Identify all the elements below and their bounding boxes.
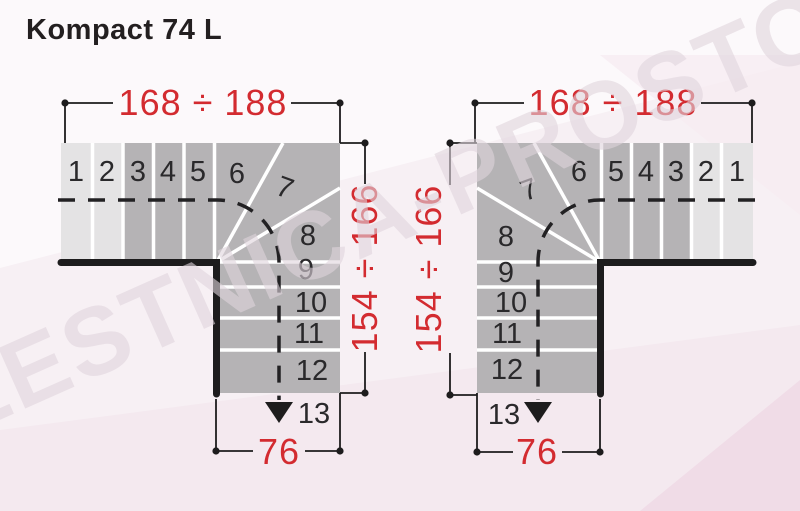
step-number: 4 bbox=[638, 156, 654, 188]
step-number: 8 bbox=[300, 220, 316, 252]
dimension-dot bbox=[361, 139, 368, 146]
wall-line bbox=[61, 263, 217, 395]
dimension-dot bbox=[446, 139, 453, 146]
step-number: 12 bbox=[491, 354, 523, 386]
step-number: 4 bbox=[160, 156, 176, 188]
dimension-label: 154 ÷ 166 bbox=[408, 185, 449, 354]
dimension-label: 76 bbox=[258, 431, 300, 472]
stair-plan-right: 1 2 3 4 5 6 7 8 9 10 11 12 13 168 ÷ 188 bbox=[408, 82, 756, 472]
step-number: 12 bbox=[296, 355, 328, 387]
dimension-side-height: 154 ÷ 166 bbox=[408, 139, 477, 398]
dimension-dot bbox=[212, 447, 219, 454]
step-number: 9 bbox=[298, 254, 314, 286]
dimension-dot bbox=[336, 99, 343, 106]
step-number: 10 bbox=[295, 287, 327, 319]
step-number: 11 bbox=[294, 318, 324, 350]
dimension-dot bbox=[336, 447, 343, 454]
dimension-top-width: 168 ÷ 188 bbox=[471, 82, 755, 143]
dimension-dot bbox=[446, 391, 453, 398]
dimension-label: 76 bbox=[516, 431, 558, 472]
step-number: 8 bbox=[498, 221, 514, 253]
wall-line bbox=[601, 263, 754, 395]
step-number: 10 bbox=[495, 287, 527, 319]
exit-arrow-icon bbox=[524, 402, 552, 423]
dimension-label: 168 ÷ 188 bbox=[119, 82, 288, 123]
stair-plan-canvas: Kompact 74 L 1 2 3 4 5 6 7 bbox=[0, 0, 800, 511]
step-number: 13 bbox=[298, 398, 330, 430]
step-number: 3 bbox=[668, 156, 684, 188]
step-number: 6 bbox=[571, 156, 587, 188]
step-number: 1 bbox=[68, 156, 84, 188]
dimension-label: 154 ÷ 166 bbox=[344, 184, 385, 353]
step-number: 2 bbox=[99, 156, 115, 188]
step-number: 3 bbox=[130, 156, 146, 188]
dimension-top-width: 168 ÷ 188 bbox=[61, 82, 343, 143]
dimension-dot bbox=[361, 389, 368, 396]
dimension-dot bbox=[471, 99, 478, 106]
step-number: 13 bbox=[488, 399, 520, 431]
dimension-dot bbox=[61, 99, 68, 106]
dimension-dot bbox=[748, 99, 755, 106]
step-number: 6 bbox=[229, 158, 245, 190]
step-number: 5 bbox=[608, 156, 624, 188]
step-number: 11 bbox=[492, 318, 522, 350]
page-title: Kompact 74 L bbox=[26, 14, 222, 47]
dimension-dot bbox=[473, 448, 480, 455]
step-number: 1 bbox=[729, 156, 745, 188]
stair-diagrams: 1 2 3 4 5 6 7 8 9 10 11 12 13 168 ÷ 188 bbox=[0, 0, 800, 511]
stair-plan-left: 1 2 3 4 5 6 7 8 9 10 11 12 13 168 ÷ 188 bbox=[58, 82, 385, 472]
dimension-dot bbox=[596, 448, 603, 455]
step-number: 2 bbox=[698, 156, 714, 188]
dimension-label: 168 ÷ 188 bbox=[529, 82, 698, 123]
dimension-side-height: 154 ÷ 166 bbox=[340, 139, 385, 396]
exit-arrow-icon bbox=[265, 402, 293, 423]
step-number: 9 bbox=[498, 257, 514, 289]
step-number: 5 bbox=[190, 156, 206, 188]
